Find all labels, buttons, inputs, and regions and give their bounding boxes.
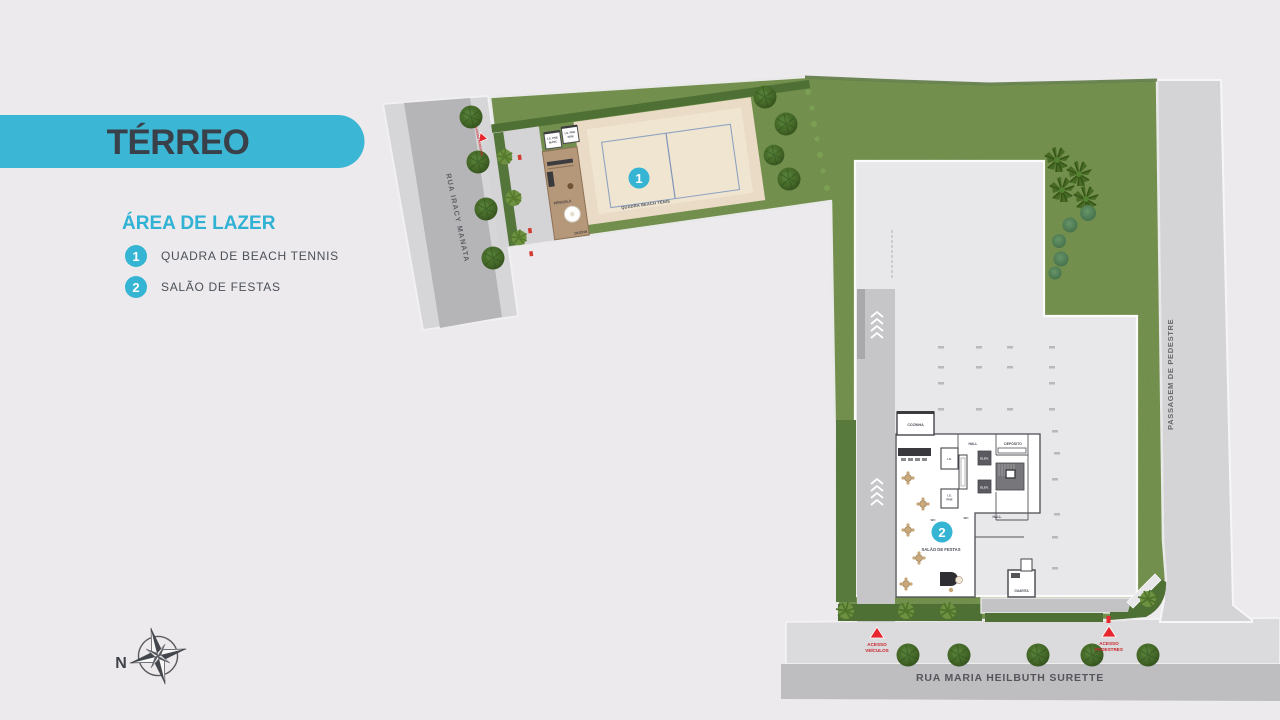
svg-text:ACESSO: ACESSO	[867, 642, 887, 647]
svg-text:COZINHA: COZINHA	[907, 423, 924, 427]
svg-text:ELEV.: ELEV.	[980, 486, 989, 490]
svg-text:WC: WC	[964, 516, 970, 520]
svg-text:SALÃO DE FESTAS: SALÃO DE FESTAS	[921, 547, 960, 552]
svg-text:ESCADA: ESCADA	[1005, 458, 1016, 462]
svg-text:2: 2	[132, 280, 139, 295]
svg-text:VEÍCULOS: VEÍCULOS	[865, 646, 888, 653]
svg-text:GUARITA: GUARITA	[1014, 589, 1029, 593]
svg-text:1: 1	[635, 171, 642, 186]
svg-text:PNE: PNE	[946, 498, 952, 502]
svg-text:I.S.: I.S.	[947, 457, 952, 461]
svg-text:RUA MARIA HEILBUTH SURETTE: RUA MARIA HEILBUTH SURETTE	[916, 672, 1104, 684]
svg-text:QUADRA DE BEACH TENNIS: QUADRA DE BEACH TENNIS	[161, 249, 339, 263]
svg-text:ACESSO: ACESSO	[1099, 641, 1119, 646]
svg-text:TÉRREO: TÉRREO	[107, 122, 250, 162]
svg-text:DEPÓSITO: DEPÓSITO	[1004, 441, 1022, 446]
svg-text:HALL: HALL	[992, 515, 1001, 519]
svg-text:PEDESTRES: PEDESTRES	[1095, 647, 1123, 652]
svg-text:PASSAGEM DE PEDESTRE: PASSAGEM DE PEDESTRE	[1166, 319, 1175, 430]
svg-text:SALÃO DE FESTAS: SALÃO DE FESTAS	[161, 280, 281, 294]
svg-text:1: 1	[132, 249, 139, 264]
svg-text:ÁREA DE LAZER: ÁREA DE LAZER	[122, 212, 276, 234]
svg-text:2: 2	[938, 525, 945, 540]
svg-text:N: N	[115, 655, 127, 672]
svg-text:WC: WC	[931, 518, 937, 522]
svg-text:HALL: HALL	[968, 442, 977, 446]
svg-text:ELEV.: ELEV.	[980, 457, 989, 461]
